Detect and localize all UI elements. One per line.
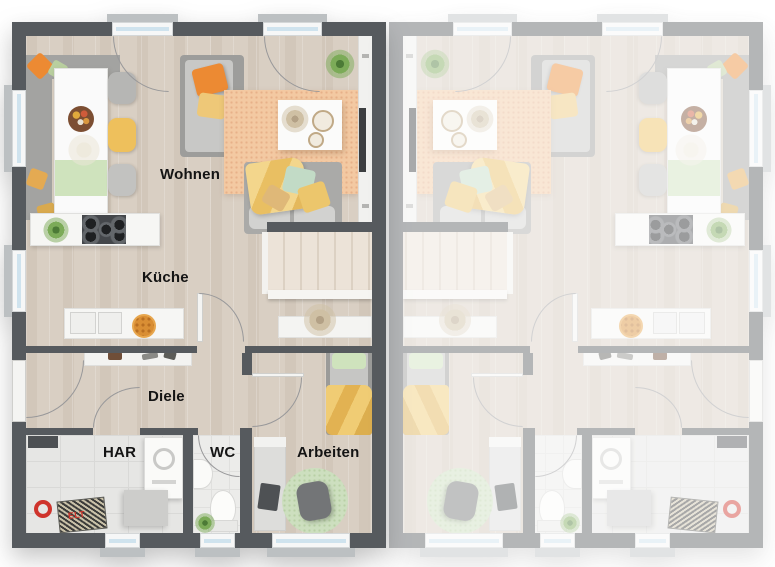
window-office-mirrored (425, 533, 503, 548)
dining-chair-mirrored (639, 118, 667, 152)
wall-hall-office (242, 353, 252, 375)
office-chair (295, 480, 333, 523)
window-sill (267, 548, 355, 557)
stair-winder-mirrored (403, 232, 507, 294)
wall-party (372, 22, 386, 548)
pillow-mirrored (547, 92, 578, 120)
fruit-bowl-mirrored (681, 106, 707, 132)
plant-kitchen-mirrored (705, 216, 733, 244)
wall-utility-wc-mirrored (582, 428, 592, 533)
window-dining (12, 90, 26, 167)
utility-shelf (28, 436, 58, 448)
window-wc-mirrored (540, 533, 575, 548)
sink-basin-mirrored (679, 312, 705, 334)
shelf-item (362, 54, 369, 58)
plant-kitchen (42, 216, 70, 244)
dining-chair (108, 164, 136, 196)
washer-slot (152, 480, 176, 484)
room-label-diele: Diele (148, 388, 185, 405)
console-item-mirrored (653, 352, 667, 360)
coffee-table-plant-mirrored (465, 104, 495, 134)
shelf-item (362, 204, 369, 208)
window-sill-mirrored (763, 85, 771, 172)
washer-slot-mirrored (599, 480, 623, 484)
wall-living-hall-mirrored (389, 222, 508, 232)
floor-plan: Wohnen Küche Diele HAR WC Arbeiten ELT (0, 0, 775, 567)
wall-hall-utility (140, 428, 183, 435)
tray-mirrored (451, 132, 467, 148)
window-utility-mirrored (635, 533, 670, 548)
fruit-bowl (132, 314, 156, 338)
window-sill-mirrored (420, 548, 508, 557)
wall-top (12, 22, 386, 36)
console-item (108, 352, 122, 360)
table-flowers (66, 132, 102, 168)
fruit-bowl (68, 106, 94, 132)
tray-mirrored (441, 110, 463, 132)
laundry-box (124, 490, 168, 526)
room-label-wc: WC (210, 444, 235, 461)
bed-blanket-mirrored (403, 385, 449, 435)
plant-living (324, 48, 356, 80)
stair-rail (268, 290, 372, 299)
staircase-mirrored (403, 232, 507, 294)
window-sill (258, 14, 327, 22)
wall-hall-utility-mirrored (682, 428, 749, 435)
entry-door (12, 360, 26, 422)
water-valve (34, 500, 52, 518)
wall-utility-wc (183, 428, 193, 533)
dining-chair-mirrored (639, 164, 667, 196)
window-dining-mirrored (749, 90, 763, 167)
sink-basin (98, 312, 122, 334)
room-label-wohnen: Wohnen (160, 166, 220, 183)
window-utility (105, 533, 140, 548)
window-sill (100, 548, 145, 557)
tray (308, 132, 324, 148)
window-sill (195, 548, 240, 557)
bed-pillow-mirrored (409, 353, 443, 369)
table-flowers-mirrored (673, 132, 709, 168)
bed-pillow (332, 353, 366, 369)
elt-label: ELT (67, 509, 85, 521)
tv-screen (359, 108, 366, 172)
wall-living-hall (267, 222, 386, 232)
stair-rail (262, 232, 268, 294)
window-living-2 (263, 22, 322, 36)
sink-basin-mirrored (653, 312, 677, 334)
window-sill-mirrored (448, 14, 517, 22)
wall-hall-utility (26, 428, 93, 435)
wall-kitchen-hall (12, 346, 197, 353)
laptop (257, 483, 280, 512)
cooktop (82, 215, 126, 244)
bed-blanket (326, 385, 372, 435)
unit-left: Wohnen Küche Diele HAR WC Arbeiten ELT (12, 22, 386, 548)
unit-right (389, 22, 763, 548)
shelf-item-mirrored (406, 54, 413, 58)
window-sill (4, 245, 12, 317)
tv-screen-mirrored (409, 108, 416, 172)
entry-door-mirrored (749, 360, 763, 422)
window-sill-mirrored (630, 548, 675, 557)
desk-shelf (254, 437, 286, 447)
utility-shelf-mirrored (717, 436, 747, 448)
dining-bench (26, 55, 52, 220)
room-label-har: HAR (103, 444, 136, 461)
laptop-mirrored (494, 483, 517, 512)
window-sill (107, 14, 178, 22)
plant-wc (194, 512, 216, 534)
window-office (272, 533, 350, 548)
window-sill (4, 85, 12, 172)
window-kitchen-mirrored (749, 250, 763, 312)
window-living-1 (112, 22, 173, 36)
window-sill-mirrored (597, 14, 668, 22)
stair-winder (268, 232, 372, 294)
wall-kitchen-hall-mirrored (578, 346, 763, 353)
plant-living-mirrored (419, 48, 451, 80)
wall-top-mirrored (389, 22, 763, 36)
room-label-arbeiten: Arbeiten (297, 444, 359, 461)
desk-shelf-mirrored (489, 437, 521, 447)
washer-door (153, 448, 175, 470)
wall-wc-office (240, 428, 252, 533)
wall-hall-office-mirrored (523, 353, 533, 375)
window-wc (200, 533, 235, 548)
window-kitchen (12, 250, 26, 312)
elt-panel-mirrored (667, 497, 718, 534)
wall-wc-stub (193, 428, 198, 435)
room-label-kueche: Küche (142, 269, 189, 286)
window-sill-mirrored (763, 245, 771, 317)
wall-under-stairs-mirrored (403, 346, 530, 353)
wall-wc-office-mirrored (523, 428, 535, 533)
dried-plant-mirrored (437, 302, 473, 338)
dining-bench-mirrored (723, 55, 749, 220)
stair-rail-mirrored (507, 232, 513, 294)
dining-chair (108, 118, 136, 152)
cooktop-mirrored (649, 215, 693, 244)
wall-hall-utility-mirrored (592, 428, 635, 435)
shelf-item-mirrored (406, 204, 413, 208)
window-living-1-mirrored (602, 22, 663, 36)
dried-plant (302, 302, 338, 338)
tray (312, 110, 334, 132)
staircase (268, 232, 372, 294)
wall-wc-stub-mirrored (577, 428, 582, 435)
window-living-2-mirrored (453, 22, 512, 36)
pillow (196, 92, 227, 120)
wall-under-stairs (245, 346, 372, 353)
wall-party-mirrored (389, 22, 403, 548)
sink-basin (70, 312, 96, 334)
plant-wc-mirrored (559, 512, 581, 534)
washer-door-mirrored (600, 448, 622, 470)
stair-rail-mirrored (403, 290, 507, 299)
window-sill-mirrored (535, 548, 580, 557)
fruit-bowl-mirrored (619, 314, 643, 338)
water-valve-mirrored (723, 500, 741, 518)
laundry-box-mirrored (607, 490, 651, 526)
coffee-table-plant (280, 104, 310, 134)
